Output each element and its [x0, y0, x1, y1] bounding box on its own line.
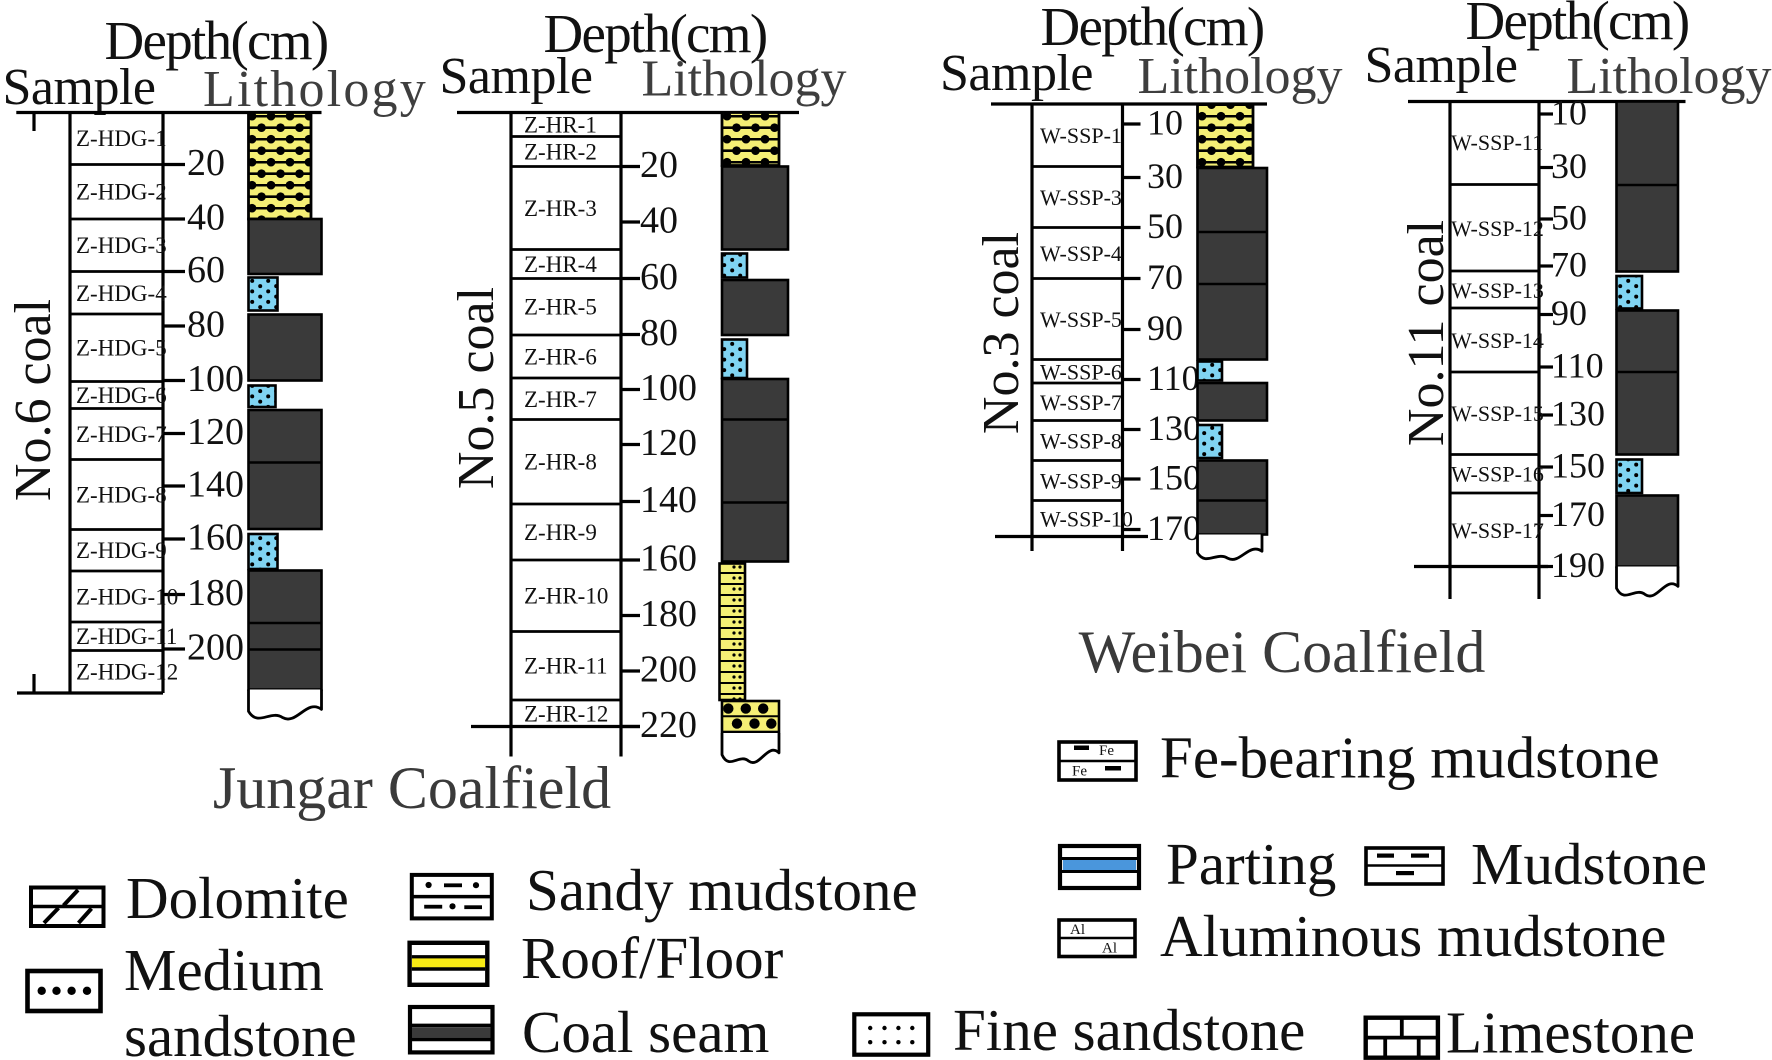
svg-text:Z-HDG-8: Z-HDG-8	[76, 483, 167, 508]
svg-text:Z-HR-5: Z-HR-5	[524, 295, 597, 320]
svg-text:160: 160	[187, 517, 244, 559]
svg-text:Sandy mudstone: Sandy mudstone	[526, 857, 918, 923]
svg-text:Al: Al	[1102, 941, 1117, 957]
svg-text:Z-HDG-10: Z-HDG-10	[76, 585, 178, 610]
svg-text:sandstone: sandstone	[124, 1003, 357, 1060]
svg-text:Z-HDG-11: Z-HDG-11	[76, 624, 177, 649]
svg-text:100: 100	[187, 358, 244, 400]
svg-text:W-SSP-9: W-SSP-9	[1040, 469, 1122, 494]
svg-text:40: 40	[640, 200, 678, 242]
svg-text:Z-HDG-5: Z-HDG-5	[76, 336, 167, 361]
svg-text:Limestone: Limestone	[1446, 1000, 1695, 1060]
svg-text:140: 140	[640, 479, 697, 521]
svg-text:200: 200	[640, 649, 697, 691]
svg-text:W-SSP-12: W-SSP-12	[1451, 216, 1544, 241]
svg-text:20: 20	[640, 144, 678, 186]
svg-text:Z-HR-4: Z-HR-4	[524, 252, 597, 277]
svg-text:Medium: Medium	[124, 937, 324, 1003]
svg-text:110: 110	[1147, 358, 1200, 398]
svg-text:W-SSP-11: W-SSP-11	[1451, 130, 1543, 155]
svg-text:50: 50	[1551, 198, 1587, 238]
svg-text:W-SSP-10: W-SSP-10	[1040, 507, 1133, 532]
svg-text:30: 30	[1551, 146, 1587, 186]
svg-text:Weibei Coalfield: Weibei Coalfield	[1079, 619, 1486, 685]
svg-text:Aluminous mudstone: Aluminous mudstone	[1160, 903, 1666, 969]
svg-text:190: 190	[1551, 545, 1605, 585]
svg-text:180: 180	[187, 572, 244, 614]
svg-text:W-SSP-17: W-SSP-17	[1451, 518, 1544, 543]
svg-text:W-SSP-8: W-SSP-8	[1040, 429, 1122, 454]
svg-text:110: 110	[1551, 346, 1604, 386]
svg-text:130: 130	[1551, 394, 1605, 434]
svg-text:W-SSP-3: W-SSP-3	[1040, 185, 1122, 210]
svg-text:Z-HDG-1: Z-HDG-1	[76, 126, 167, 151]
svg-text:W-SSP-4: W-SSP-4	[1040, 241, 1122, 266]
svg-text:40: 40	[187, 197, 225, 239]
svg-text:80: 80	[187, 304, 225, 346]
svg-text:Jungar Coalfield: Jungar Coalfield	[213, 755, 611, 821]
svg-text:Fe-bearing mudstone: Fe-bearing mudstone	[1160, 725, 1660, 791]
svg-text:W-SSP-7: W-SSP-7	[1040, 390, 1122, 415]
svg-text:Sample: Sample	[3, 59, 156, 116]
svg-text:Z-HR-8: Z-HR-8	[524, 450, 597, 475]
svg-text:90: 90	[1551, 293, 1587, 333]
svg-text:60: 60	[640, 256, 678, 298]
svg-text:Z-HR-6: Z-HR-6	[524, 345, 597, 370]
svg-text:Z-HDG-4: Z-HDG-4	[76, 281, 167, 306]
svg-text:50: 50	[1147, 206, 1183, 246]
svg-text:Z-HDG-9: Z-HDG-9	[76, 538, 167, 563]
svg-text:Z-HR-3: Z-HR-3	[524, 196, 597, 221]
svg-text:150: 150	[1551, 446, 1605, 486]
svg-text:Dolomite: Dolomite	[126, 865, 349, 931]
svg-text:W-SSP-15: W-SSP-15	[1451, 401, 1544, 426]
svg-text:130: 130	[1147, 408, 1201, 448]
svg-text:20: 20	[187, 142, 225, 184]
svg-text:Z-HDG-7: Z-HDG-7	[76, 422, 167, 447]
svg-text:140: 140	[187, 464, 244, 506]
svg-text:W-SSP-6: W-SSP-6	[1040, 360, 1122, 385]
svg-text:Z-HR-1: Z-HR-1	[524, 113, 597, 138]
svg-text:150: 150	[1147, 458, 1201, 498]
svg-text:Lithology: Lithology	[1137, 48, 1342, 105]
svg-text:No.3 coal: No.3 coal	[973, 232, 1030, 434]
svg-text:W-SSP-14: W-SSP-14	[1451, 328, 1544, 353]
svg-text:10: 10	[1551, 93, 1587, 133]
svg-text:170: 170	[1147, 508, 1201, 548]
svg-text:Z-HR-7: Z-HR-7	[524, 387, 597, 412]
svg-text:Z-HR-10: Z-HR-10	[524, 584, 608, 609]
svg-text:120: 120	[187, 411, 244, 453]
svg-text:No.6 coal: No.6 coal	[5, 299, 62, 501]
svg-text:Z-HDG-3: Z-HDG-3	[76, 233, 167, 258]
svg-text:170: 170	[1551, 494, 1605, 534]
svg-text:No.11 coal: No.11 coal	[1398, 220, 1455, 446]
svg-text:Z-HR-12: Z-HR-12	[524, 702, 608, 727]
svg-text:W-SSP-5: W-SSP-5	[1040, 307, 1122, 332]
svg-text:Coal seam: Coal seam	[522, 999, 769, 1060]
svg-text:Z-HR-2: Z-HR-2	[524, 140, 597, 165]
svg-text:Z-HDG-2: Z-HDG-2	[76, 180, 167, 205]
svg-text:70: 70	[1147, 257, 1183, 297]
svg-text:30: 30	[1147, 156, 1183, 196]
svg-text:Fe: Fe	[1099, 743, 1114, 759]
svg-text:Z-HDG-12: Z-HDG-12	[76, 660, 178, 685]
svg-text:Al: Al	[1070, 922, 1085, 938]
svg-text:Sample: Sample	[440, 48, 593, 105]
svg-text:Z-HR-11: Z-HR-11	[524, 654, 607, 679]
svg-text:180: 180	[640, 593, 697, 635]
svg-text:W-SSP-16: W-SSP-16	[1451, 462, 1544, 487]
svg-text:Fe: Fe	[1072, 764, 1087, 780]
svg-text:220: 220	[640, 704, 697, 746]
svg-text:Fine sandstone: Fine sandstone	[953, 997, 1305, 1060]
svg-text:60: 60	[187, 249, 225, 291]
svg-text:Z-HDG-6: Z-HDG-6	[76, 383, 167, 408]
svg-text:160: 160	[640, 538, 697, 580]
svg-text:120: 120	[640, 422, 697, 464]
svg-text:Sample: Sample	[1365, 37, 1518, 94]
svg-text:200: 200	[187, 627, 244, 669]
svg-text:80: 80	[640, 312, 678, 354]
svg-text:W-SSP-1: W-SSP-1	[1040, 123, 1122, 148]
svg-text:Z-HR-9: Z-HR-9	[524, 520, 597, 545]
svg-text:No.5 coal: No.5 coal	[448, 287, 505, 489]
svg-text:Lithology: Lithology	[203, 61, 428, 118]
svg-text:Lithology: Lithology	[641, 51, 846, 108]
svg-text:90: 90	[1147, 308, 1183, 348]
svg-text:W-SSP-13: W-SSP-13	[1451, 278, 1544, 303]
svg-text:Lithology: Lithology	[1566, 48, 1771, 105]
svg-text:Mudstone: Mudstone	[1471, 831, 1707, 897]
svg-text:70: 70	[1551, 245, 1587, 285]
svg-text:100: 100	[640, 367, 697, 409]
svg-text:10: 10	[1147, 103, 1183, 143]
svg-text:Sample: Sample	[940, 45, 1093, 102]
svg-text:Roof/Floor: Roof/Floor	[521, 925, 784, 991]
svg-text:Parting: Parting	[1166, 831, 1336, 897]
